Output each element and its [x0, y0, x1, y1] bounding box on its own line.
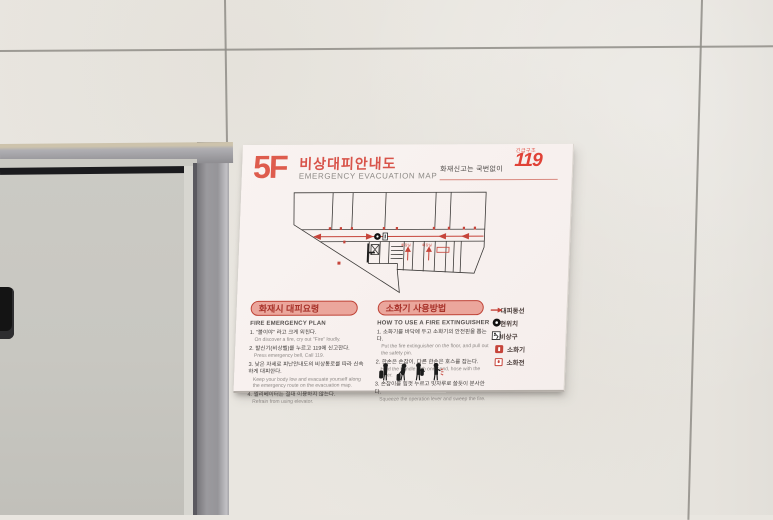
current-location-marker: [374, 233, 388, 240]
evacuation-sign-board: 5F 비상대피안내도 EMERGENCY EVACUATION MAP 화재신고…: [233, 144, 574, 393]
legend-row-hydrant: 소화전: [494, 355, 557, 368]
section-header-evacuation: 화재시 대피요령: [250, 301, 358, 316]
fire-extinguisher-icon: [495, 345, 503, 353]
door-edge-highlight: [184, 166, 193, 515]
fire-hydrant-icon: [495, 358, 503, 366]
legend-label: 현위치: [500, 318, 518, 328]
sign-title-english: EMERGENCY EVACUATION MAP: [299, 171, 438, 180]
stair-up-arrows: [405, 247, 449, 260]
legend-row-exit: 비상구: [495, 329, 558, 342]
legend-label: 소화전: [506, 356, 524, 366]
step2-pictogram: [395, 362, 409, 382]
legend-label: 비상구: [499, 331, 517, 341]
step3-pictogram: [413, 362, 427, 382]
evac-item-en: Press emergency bell, Call 119.: [249, 353, 369, 360]
floor-plan-walls: [290, 192, 486, 293]
ext-item-en: Put the fire extinguisher on the floor, …: [376, 343, 491, 356]
floor-plan-map: 화장실 화장실: [237, 188, 571, 301]
header-underline: [440, 179, 558, 180]
door-panel: [0, 159, 197, 515]
step4-pictogram: [431, 362, 445, 382]
restroom-label-1: 화장실: [401, 242, 411, 247]
fire-report-text: 화재신고는 국번없이: [440, 164, 503, 174]
logo-119: 119: [514, 150, 542, 172]
door-frame-jamb: [197, 142, 229, 515]
section-header-extinguisher: 소화기 사용방법: [377, 300, 484, 315]
extinguisher-step-pictograms: [377, 358, 488, 382]
map-legend: 대피동선 현위치 비상구 소화기 소화전: [494, 303, 559, 368]
ext-item-ko: 1. 소화기를 바닥에 두고 소화기의 안전핀을 뽑는다.: [376, 329, 491, 344]
ext-item-ko: 3. 손잡이를 힘껏 누르고 빗자루로 쓸듯이 분사한다.: [374, 382, 489, 397]
legend-row-route: 대피동선: [496, 303, 559, 316]
ext-item-en: Squeeze the operation lever and sweep th…: [374, 396, 488, 403]
section-subheader-extinguisher: HOW TO USE A FIRE EXTINGUISHER: [377, 320, 489, 326]
legend-label: 소화기: [507, 343, 525, 353]
section-subheader-evacuation: FIRE EMERGENCY PLAN: [250, 321, 326, 327]
evacuation-instructions-list: 1. "불이야" 라고 크게 외친다. On discover a fire, …: [247, 330, 370, 409]
legend-row-extinguisher: 소화기: [495, 342, 558, 355]
door-handle: [0, 287, 14, 339]
step1-pictogram: [377, 362, 391, 382]
door-edge-gap: [193, 163, 197, 515]
evac-item-en: Refrain from using elevator.: [247, 399, 367, 406]
evacuation-route-line: [314, 234, 483, 239]
legend-label: 대피동선: [500, 304, 524, 314]
evac-item-en: Keep your body low and evacuate yourself…: [248, 376, 369, 389]
restroom-label-2: 화장실: [422, 242, 432, 247]
legend-row-current-location: 현위치: [496, 316, 559, 329]
evac-item-en: On discover a fire, cry out "Fire" loudl…: [249, 337, 369, 344]
floor-number: 5F: [252, 149, 287, 186]
evac-item-ko: 3. 낮은 자세로 피난안내도의 비상통로를 따라 신속하게 대피한다.: [248, 362, 369, 377]
